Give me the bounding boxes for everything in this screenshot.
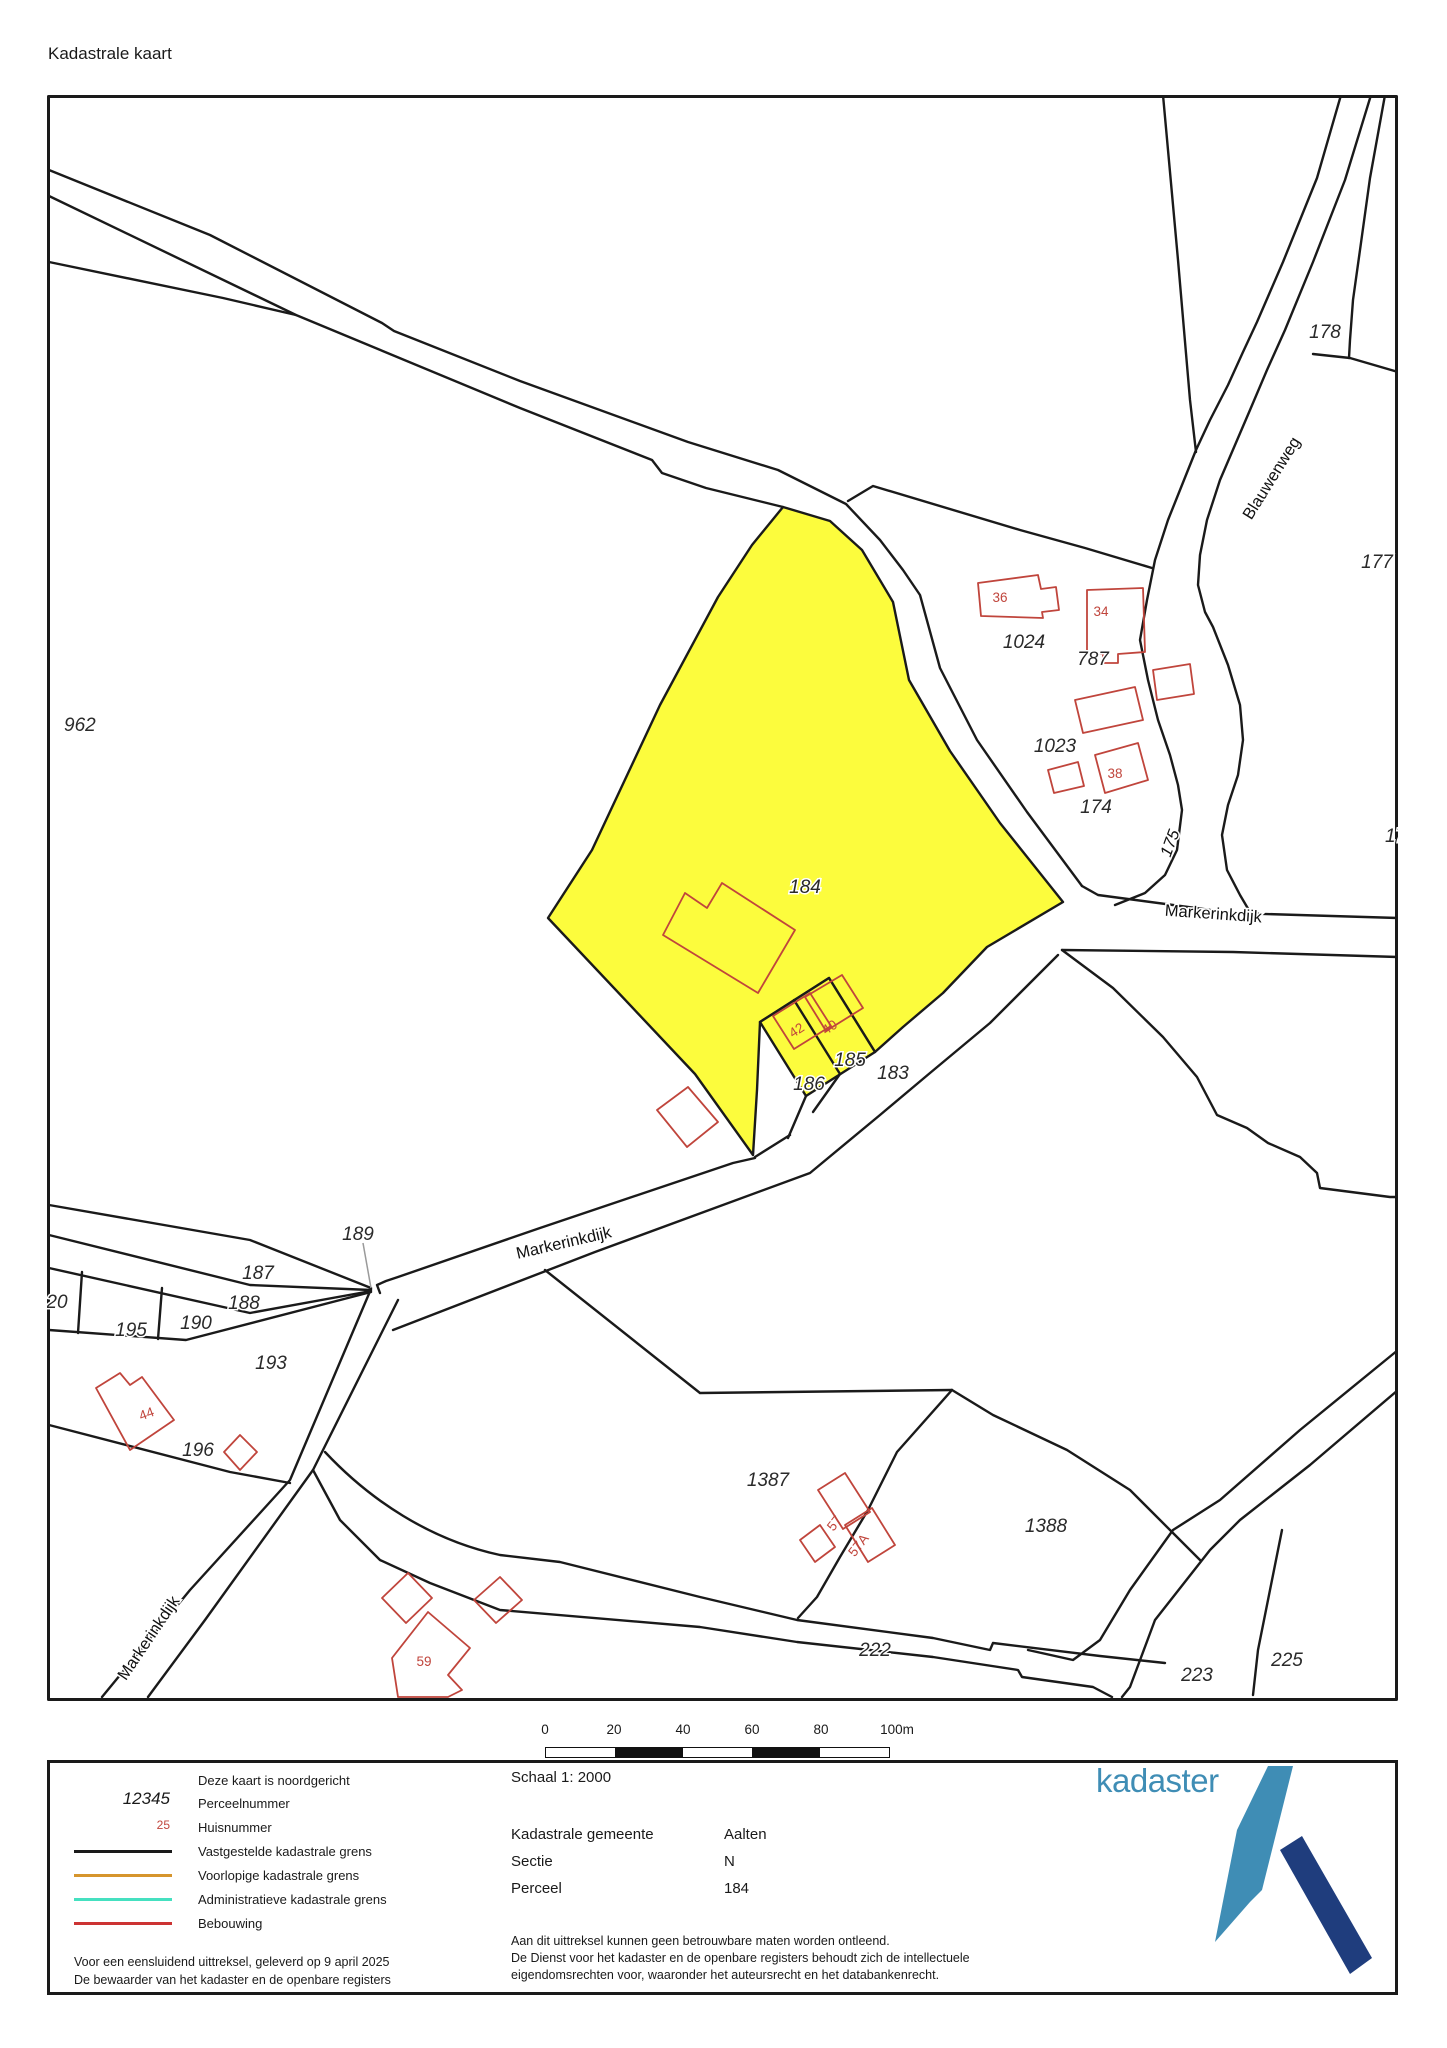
legend-line-voorlopig	[74, 1874, 172, 1877]
legend-label-bebouwing: Bebouwing	[198, 1916, 262, 1931]
parcel-label-962: 962	[64, 715, 96, 736]
house-number-57a: 57A	[845, 1531, 872, 1559]
parcel-label-174: 174	[1080, 797, 1112, 818]
wedge-divider-2	[158, 1288, 162, 1339]
parcel-label-186: 186	[793, 1074, 825, 1095]
parcel-label-188: 188	[228, 1293, 260, 1314]
scale-tick-100: 100m	[867, 1722, 927, 1737]
scale-segment	[546, 1748, 615, 1757]
info-value-gemeente: Aalten	[724, 1826, 767, 1843]
parcel-label-190: 190	[180, 1313, 212, 1334]
house-number-34: 34	[1093, 604, 1109, 619]
parcel-label-189: 189	[342, 1224, 374, 1245]
parcel-178-east-line	[1349, 95, 1385, 358]
disclaimer-line-3: eigendomsrechten voor, waaronder het aut…	[511, 1968, 939, 1982]
road-center-nw-line	[377, 1158, 755, 1293]
parcel-label-177: 177	[1361, 552, 1394, 573]
building-57-shed	[800, 1525, 835, 1562]
scale-tick-0: 0	[515, 1722, 575, 1737]
road-nw-south-line	[49, 196, 783, 507]
disclaimer-line-2: De Dienst voor het kadaster en de openba…	[511, 1951, 970, 1965]
road-222-south-line	[313, 1470, 1112, 1697]
parcel-label-223: 223	[1180, 1665, 1213, 1686]
building-outbuilding-184	[657, 1087, 718, 1147]
scale-tick-60: 60	[722, 1722, 782, 1737]
building-59-east	[474, 1577, 522, 1623]
scale-segment	[683, 1748, 752, 1757]
building-787-a	[1153, 664, 1194, 700]
scale-tick-40: 40	[653, 1722, 713, 1737]
parcel-label-183: 183	[877, 1063, 909, 1084]
building-787-b	[1075, 687, 1143, 733]
house-number-44: 44	[137, 1404, 157, 1423]
kadaster-logo-mark	[1200, 1762, 1390, 1987]
parcel-label-195: 195	[115, 1320, 147, 1341]
parcel-label-1024: 1024	[1003, 632, 1045, 653]
parcel-label-1388: 1388	[1025, 1516, 1068, 1537]
cadastral-extract-page: Kadastrale kaart	[0, 0, 1447, 2048]
info-label-sectie: Sectie	[511, 1853, 553, 1870]
parcel-label-184: 184	[789, 877, 821, 898]
legend-sample-huisnummer: 25	[50, 1818, 170, 1832]
legend-label-administratief: Administratieve kadastrale grens	[198, 1892, 387, 1907]
legend-label-perceelnummer: Perceelnummer	[198, 1796, 290, 1811]
legend-line-vastgesteld	[74, 1850, 172, 1853]
scale-text: Schaal 1: 2000	[511, 1769, 611, 1786]
boundary-1387-1388-divider	[798, 1390, 952, 1618]
parcel-label-178: 178	[1309, 322, 1341, 343]
strip-line-3	[755, 1135, 790, 1157]
scale-tick-80: 80	[791, 1722, 851, 1737]
wedge-line-2	[49, 1235, 371, 1290]
road-se-curve-1	[1028, 1350, 1398, 1660]
parcel-label-185: 185	[834, 1050, 866, 1071]
parcel-label-225: 225	[1270, 1650, 1303, 1671]
parcel-label-187: 187	[242, 1263, 275, 1284]
parcel-label-17: 17	[1385, 826, 1398, 847]
scale-tick-20: 20	[584, 1722, 644, 1737]
info-label-gemeente: Kadastrale gemeente	[511, 1826, 654, 1843]
boundary-top	[1163, 95, 1196, 452]
scale-segment	[752, 1748, 821, 1757]
issued-line-2: De bewaarder van het kadaster en de open…	[74, 1973, 391, 1987]
house-number-38: 38	[1107, 766, 1122, 781]
legend-sample-perceelnummer: 12345	[50, 1789, 170, 1809]
logo-stroke-shape	[1280, 1836, 1372, 1974]
issued-line-1: Voor een eensluidend uittreksel, gelever…	[74, 1955, 390, 1969]
road-name-markerinkdijk-center: Markerinkdijk	[515, 1223, 614, 1263]
building-44	[96, 1373, 174, 1450]
building-196-small	[224, 1435, 257, 1470]
scale-bar: 0 20 40 60 80 100m	[545, 1722, 905, 1762]
house-number-59: 59	[416, 1654, 431, 1669]
parcel-label-196: 196	[182, 1440, 214, 1461]
legend-line-administratief	[74, 1898, 172, 1901]
north-note: Deze kaart is noordgericht	[198, 1773, 350, 1788]
blauwenweg-west-line	[1115, 95, 1341, 905]
boundary-southeast	[1062, 950, 1398, 1197]
disclaimer-line-1: Aan dit uittreksel kunnen geen betrouwba…	[511, 1934, 890, 1948]
parcel-label-193: 193	[255, 1353, 287, 1374]
parcel-178-notch	[1313, 354, 1398, 372]
logo-nib-shape	[1215, 1766, 1293, 1942]
scale-segment	[820, 1748, 889, 1757]
boundary-196-north	[49, 1425, 290, 1483]
house-numbers-layer: 36 34 38 44 42 40 57 57A 59	[137, 590, 1123, 1669]
map-canvas: 962 178 177 17 1024 787 1023 174 184 185…	[47, 95, 1398, 1701]
road-name-blauwenweg: Blauwenweg	[1239, 434, 1304, 523]
legend-label-voorlopig: Voorlopige kadastrale grens	[198, 1868, 359, 1883]
road-name-markerinkdijk-east: Markerinkdijk	[1164, 902, 1263, 927]
info-value-perceel: 184	[724, 1880, 749, 1897]
info-value-sectie: N	[724, 1853, 735, 1870]
wedge-divider-1	[78, 1272, 82, 1333]
road-name-markerinkdijk-south: Markerinkdijk	[114, 1592, 184, 1683]
building-174-small	[1048, 762, 1084, 793]
boundary-1388-north	[952, 1390, 1200, 1560]
legend-line-bebouwing	[74, 1922, 172, 1925]
house-number-57: 57	[824, 1513, 845, 1534]
building-36	[978, 575, 1059, 618]
info-label-perceel: Perceel	[511, 1880, 562, 1897]
parcel-label-1023: 1023	[1034, 736, 1077, 757]
parcel-label-1387: 1387	[747, 1470, 791, 1491]
parcel-label-222: 222	[858, 1640, 891, 1661]
scale-segment	[615, 1748, 684, 1757]
legend-label-huisnummer: Huisnummer	[198, 1820, 272, 1835]
strip-line-1	[788, 1096, 806, 1138]
house-number-36: 36	[992, 590, 1007, 605]
boundary-merge-line	[49, 262, 296, 315]
page-title: Kadastrale kaart	[48, 44, 172, 64]
label-189-leader	[363, 1243, 371, 1288]
boundary-1024-north	[848, 486, 1152, 568]
scale-bar-segments	[545, 1747, 890, 1758]
road-east-south-line	[1062, 950, 1398, 957]
legend-label-vastgesteld: Vastgestelde kadastrale grens	[198, 1844, 372, 1859]
boundary-1387-north	[545, 1270, 952, 1393]
parcel-label-20: 20	[47, 1292, 68, 1313]
parcel-label-787: 787	[1077, 649, 1110, 670]
cadastral-map: 962 178 177 17 1024 787 1023 174 184 185…	[47, 95, 1398, 1701]
blauwenweg-east-line	[1198, 95, 1371, 912]
